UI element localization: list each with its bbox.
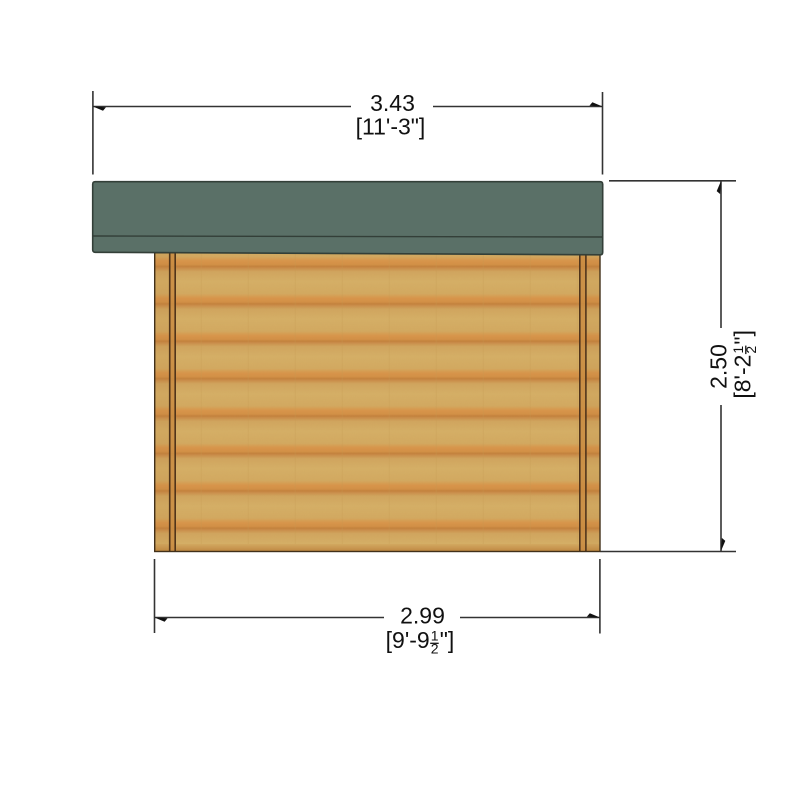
svg-text:3.43: 3.43 (370, 90, 415, 116)
svg-text:2.50: 2.50 (706, 344, 732, 389)
svg-text:[9'-9: [9'-9 (386, 627, 430, 653)
svg-text:"]: "] (440, 627, 455, 653)
svg-text:"]: "] (730, 330, 756, 345)
svg-text:2.99: 2.99 (400, 603, 445, 629)
svg-text:[8'-2: [8'-2 (730, 355, 756, 399)
svg-text:[11'-3"]: [11'-3"] (356, 114, 426, 140)
